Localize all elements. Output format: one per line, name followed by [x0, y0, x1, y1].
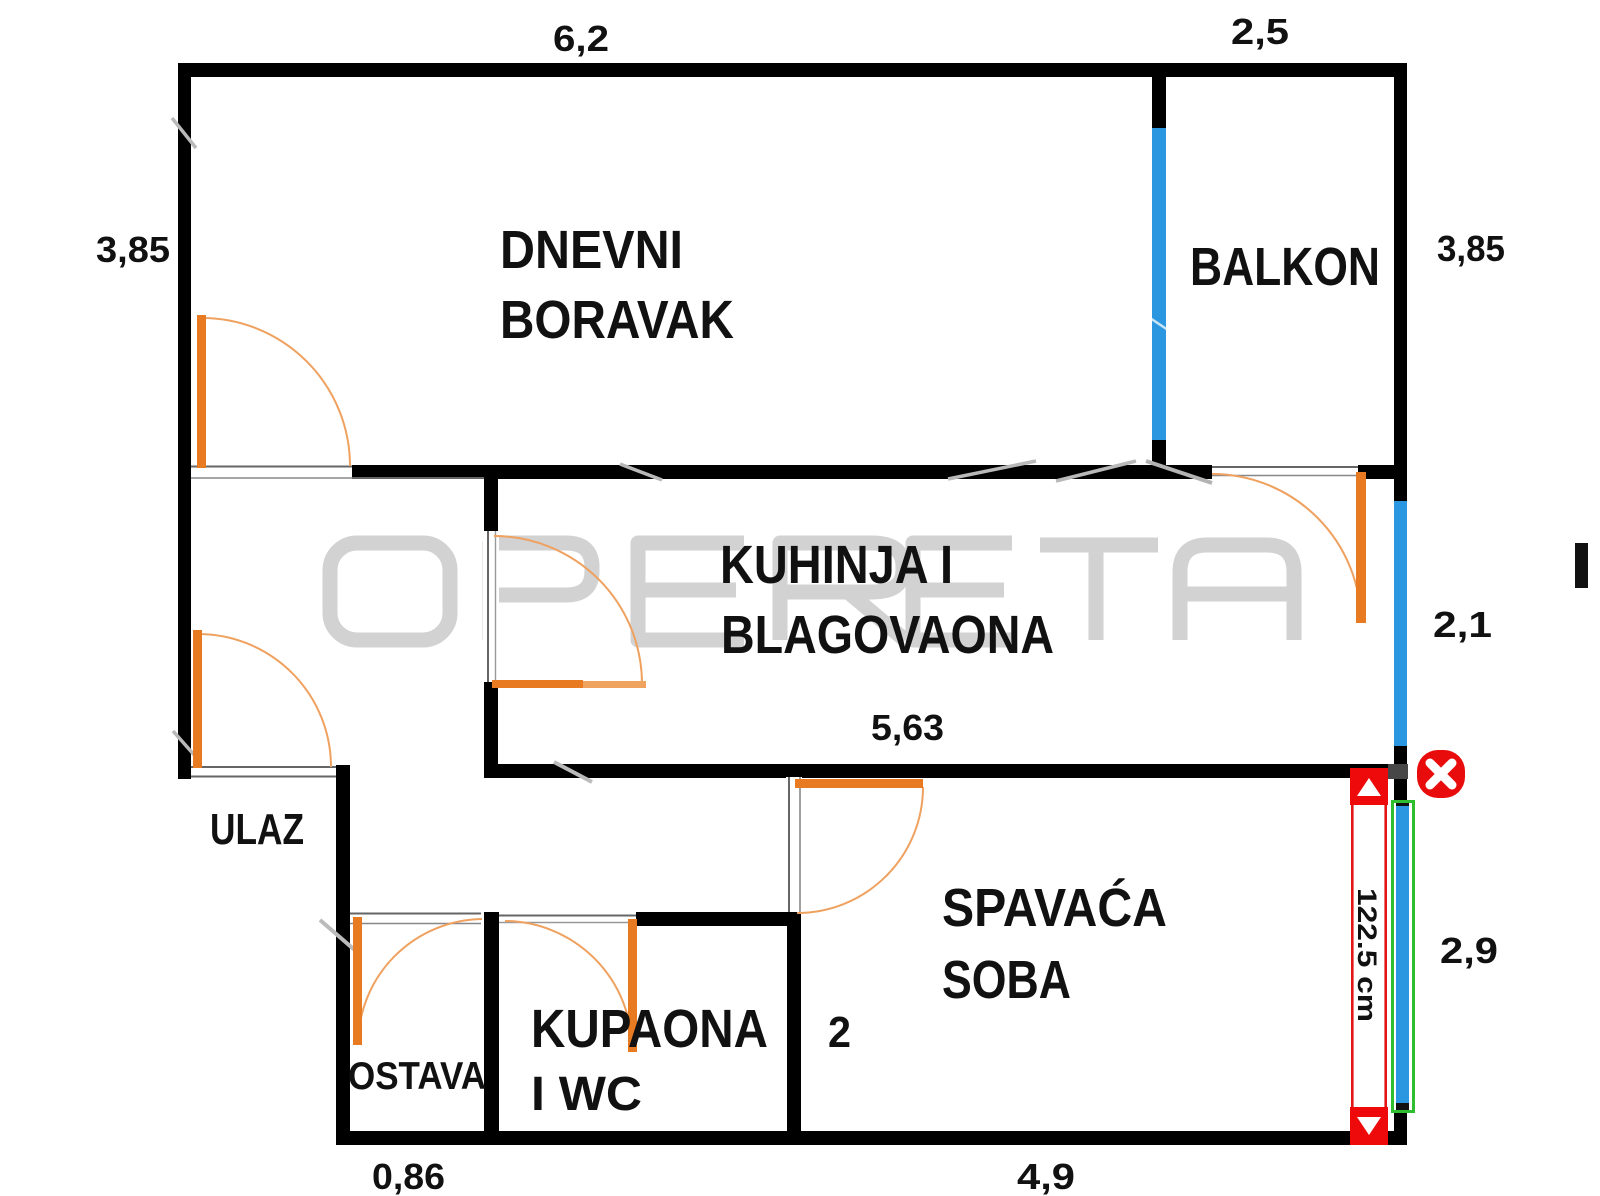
- svg-text:3,85: 3,85: [96, 229, 170, 270]
- svg-text:BLAGOVAONA: BLAGOVAONA: [721, 605, 1054, 665]
- svg-text:SPAVAĆA: SPAVAĆA: [942, 878, 1167, 938]
- svg-text:KUPAONA: KUPAONA: [531, 999, 768, 1059]
- svg-text:BALKON: BALKON: [1190, 237, 1380, 297]
- svg-text:KUHINJA I: KUHINJA I: [720, 535, 953, 595]
- svg-text:3,85: 3,85: [1437, 228, 1505, 269]
- svg-text:OSTAVA: OSTAVA: [348, 1055, 486, 1098]
- svg-text:122.5 cm: 122.5 cm: [1352, 888, 1382, 1022]
- svg-text:2,1: 2,1: [1433, 604, 1492, 645]
- svg-text:2,5: 2,5: [1231, 11, 1289, 52]
- svg-text:2,9: 2,9: [1440, 930, 1498, 971]
- svg-text:6,2: 6,2: [553, 18, 609, 59]
- svg-text:5,63: 5,63: [871, 707, 944, 748]
- svg-text:DNEVNI: DNEVNI: [500, 220, 683, 280]
- svg-text:0,86: 0,86: [372, 1156, 445, 1196]
- svg-text:BORAVAK: BORAVAK: [500, 290, 734, 350]
- svg-text:4,9: 4,9: [1017, 1156, 1075, 1196]
- svg-text:ULAZ: ULAZ: [210, 805, 304, 854]
- svg-text:I WC: I WC: [531, 1068, 642, 1121]
- svg-text:SOBA: SOBA: [942, 950, 1071, 1010]
- svg-text:2: 2: [828, 1008, 851, 1057]
